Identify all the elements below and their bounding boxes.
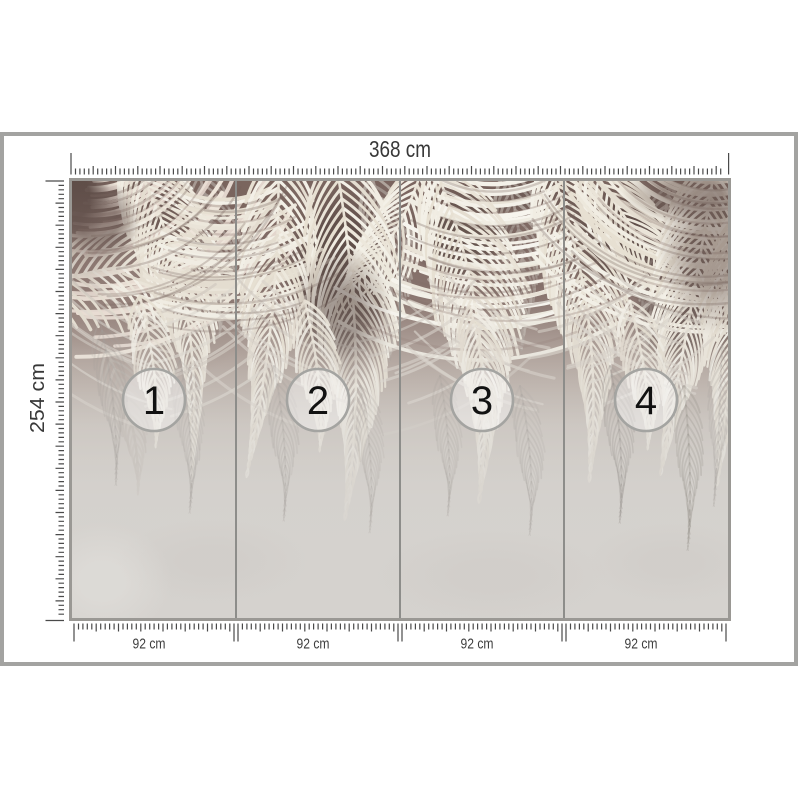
svg-text:2: 2 <box>307 379 329 423</box>
svg-text:1: 1 <box>143 379 165 423</box>
svg-text:92 cm: 92 cm <box>297 636 330 653</box>
svg-text:254 cm: 254 cm <box>27 363 49 433</box>
svg-text:92 cm: 92 cm <box>133 636 166 653</box>
svg-text:92 cm: 92 cm <box>625 636 658 653</box>
svg-text:3: 3 <box>471 379 493 423</box>
svg-text:92 cm: 92 cm <box>461 636 494 653</box>
svg-text:368 cm: 368 cm <box>369 136 431 162</box>
svg-text:4: 4 <box>635 379 657 423</box>
